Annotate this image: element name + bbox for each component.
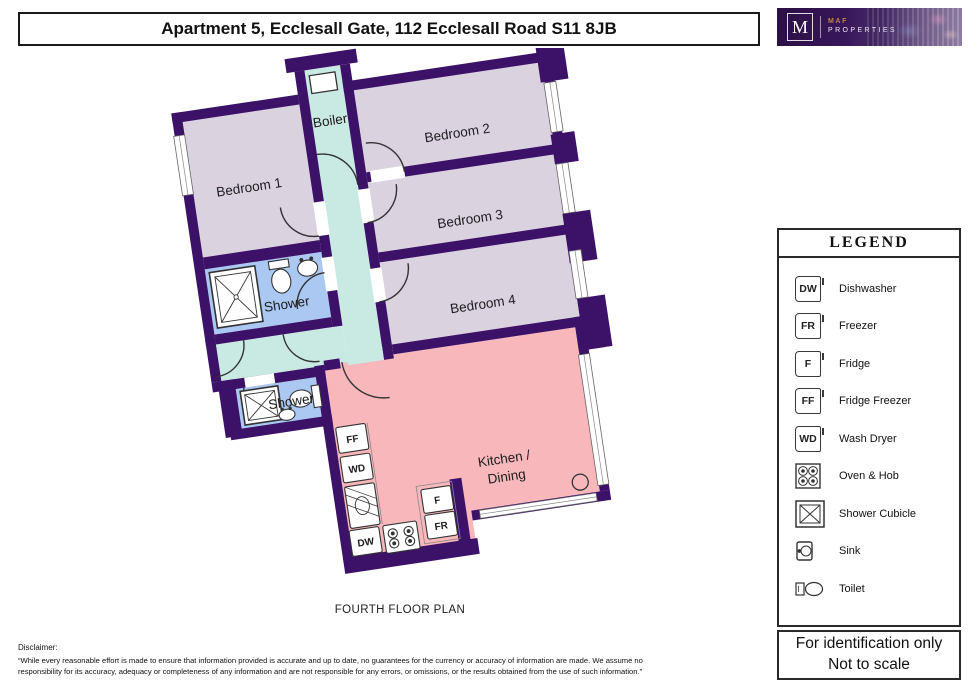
disclaimer: Disclaimer: “While every reasonable effo… [18,643,768,678]
dishwasher-icon: DW [795,276,821,302]
agency-logo: M MAF PROPERTIES [777,8,962,46]
sink-icon [795,540,839,562]
logo-divider [820,16,821,38]
page-title: Apartment 5, Ecclesall Gate, 112 Ecclesa… [161,19,616,39]
oven-hob-icon [795,463,839,489]
oven-and-hob [383,521,421,554]
shower-cubicle-1 [209,266,263,328]
legend-label: Sink [839,545,860,557]
fridge-icon: F [795,351,821,377]
identification-note: For identification only Not to scale [777,630,961,680]
appliance-label-fr: FR [434,520,450,533]
page: { "header": { "title": "Apartment 5, Ecc… [0,0,980,692]
fridge-freezer-icon: FF [795,388,821,414]
disclaimer-heading: Disclaimer: [18,643,768,652]
legend-label: Toilet [839,583,865,595]
note-line-2: Not to scale [828,655,910,676]
note-line-1: For identification only [796,634,942,655]
legend-label: Fridge Freezer [839,395,911,407]
legend-label: Shower Cubicle [839,508,916,520]
legend-item-oven-hob: Oven & Hob [795,458,959,496]
title-bar: Apartment 5, Ecclesall Gate, 112 Ecclesa… [18,12,760,46]
legend-panel: LEGEND DW Dishwasher FR Freezer F Fridge… [777,228,961,627]
legend-item-sink: Sink [795,533,959,571]
legend-label: Fridge [839,358,870,370]
floor-plan: Boiler Bedroom 1 Bedroom 2 Bedroom 3 Bed… [0,48,660,628]
logo-monogram: M [787,13,813,41]
legend-item-wash-dryer: WD Wash Dryer [795,420,959,458]
legend-label: Freezer [839,320,877,332]
plan-caption: FOURTH FLOOR PLAN [280,604,520,616]
legend-label: Wash Dryer [839,433,897,445]
legend-item-dishwasher: DW Dishwasher [795,270,959,308]
legend-item-fridge-freezer: FF Fridge Freezer [795,383,959,421]
legend-item-shower-cubicle: Shower Cubicle [795,495,959,533]
legend-label: Dishwasher [839,283,896,295]
legend-items: DW Dishwasher FR Freezer F Fridge FF Fri… [779,258,959,608]
freezer-icon: FR [795,313,821,339]
legend-item-freezer: FR Freezer [795,308,959,346]
boiler-unit [309,72,337,94]
shower-cubicle-icon [795,500,839,528]
legend-title: LEGEND [779,230,959,258]
wash-dryer-icon: WD [795,426,821,452]
logo-brand-name: MAF [828,18,897,27]
legend-item-fridge: F Fridge [795,345,959,383]
appliance-label-ff: FF [346,434,360,447]
legend-item-toilet: Toilet [795,570,959,608]
logo-brand-suffix: PROPERTIES [828,27,897,36]
legend-label: Oven & Hob [839,470,899,482]
logo-wordmark: MAF PROPERTIES [828,18,897,36]
disclaimer-line-1: “While every reasonable effort is made t… [18,655,768,666]
toilet-icon [795,581,839,597]
disclaimer-line-2: responsibility for its accuracy, adequac… [18,666,768,677]
